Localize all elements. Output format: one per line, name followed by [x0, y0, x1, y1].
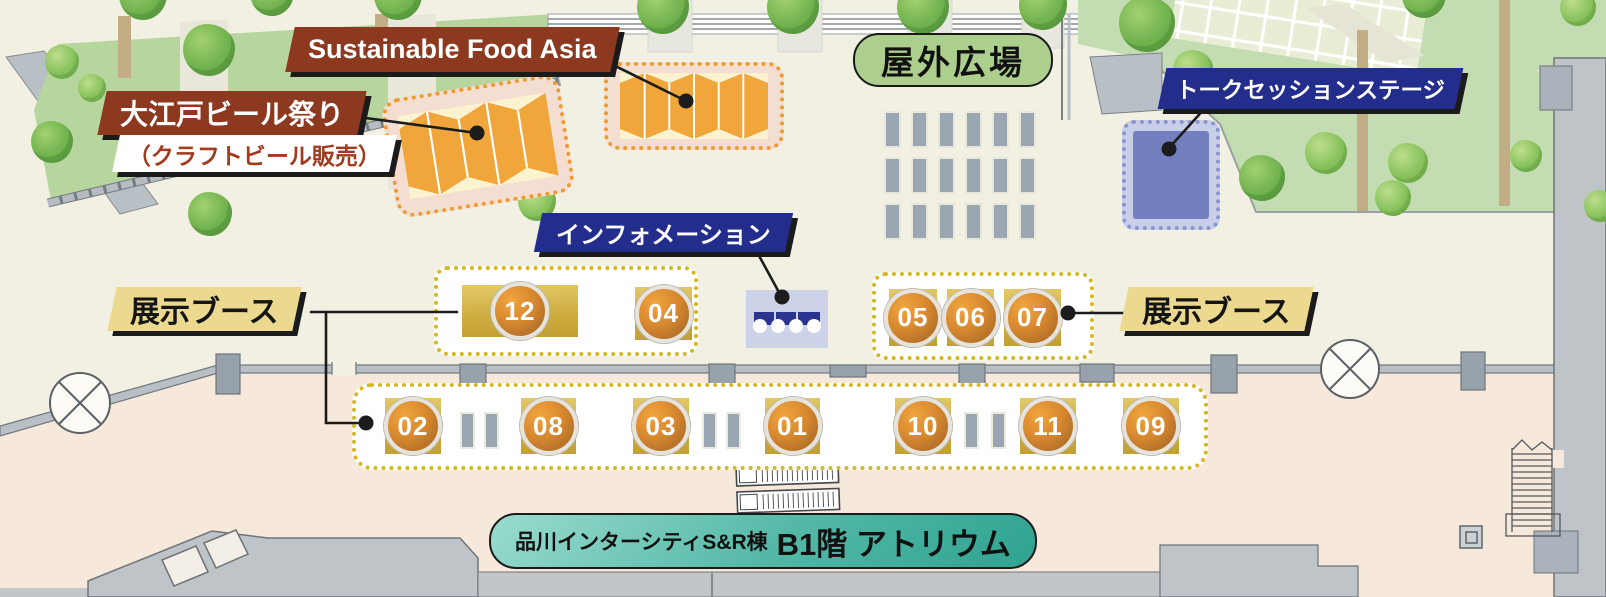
booth-number-badge: 03	[632, 397, 690, 455]
column-symbol-left	[50, 373, 110, 433]
booth-number-badge: 01	[764, 397, 822, 455]
booth-08: 08	[521, 398, 576, 454]
booth-04: 04	[635, 287, 692, 340]
food-asia-tent-zone	[604, 62, 784, 150]
information-desk-icon	[746, 290, 828, 348]
pillar-icon	[993, 414, 1004, 447]
banner-oedo-beer-subtitle: （クラフトビール販売）	[112, 135, 397, 172]
pillar-icon	[704, 414, 715, 447]
booth-box-upper-right: 05 06 07	[872, 272, 1094, 360]
venue-building-name: 品川インターシティS&R棟	[515, 526, 768, 556]
bench-icon	[940, 113, 953, 146]
bench-icon	[940, 159, 953, 192]
banner-label: （クラフトビール販売）	[128, 137, 381, 171]
pillar-icon	[486, 414, 497, 447]
label-exhibition-booth-right: 展示ブース	[1119, 287, 1313, 331]
bench-icon	[886, 159, 899, 192]
booth-06: 06	[947, 289, 994, 346]
booth-number-badge: 02	[384, 397, 442, 455]
floorplan-map: 12 04 05 06 07 02 08 03 01	[0, 0, 1606, 597]
booth-number-badge: 07	[1004, 289, 1062, 347]
banner-label: Sustainable Food Asia	[308, 34, 597, 65]
bench-icon	[994, 113, 1007, 146]
bench-icon	[1021, 159, 1034, 192]
pillar-icon	[462, 414, 473, 447]
label-outdoor-plaza: 屋外広場	[853, 33, 1053, 87]
pillar-icon	[966, 414, 977, 447]
banner-label: インフォメーション	[556, 215, 771, 250]
column-symbol-right	[1321, 340, 1379, 398]
banner-information: インフォメーション	[534, 213, 793, 252]
booth-03: 03	[633, 398, 689, 454]
booth-09: 09	[1123, 398, 1179, 454]
booth-box-upper-left: 12 04	[434, 266, 698, 356]
bench-icon	[1021, 113, 1034, 146]
talk-stage-platform	[1122, 120, 1220, 230]
bench-icon	[1021, 205, 1034, 238]
booth-11: 11	[1020, 398, 1076, 454]
booth-12: 12	[462, 285, 578, 337]
booth-number-badge: 05	[884, 289, 942, 347]
booth-07: 07	[1004, 289, 1061, 346]
booth-number-badge: 09	[1122, 397, 1180, 455]
booth-10: 10	[895, 398, 951, 454]
banner-talk-session-stage: トークセッションステージ	[1158, 68, 1464, 109]
pillar-icon	[728, 414, 739, 447]
bench-icon	[940, 205, 953, 238]
banner-sustainable-food-asia: Sustainable Food Asia	[285, 27, 619, 72]
booth-number-badge: 12	[491, 282, 549, 340]
plaza-bench-grid	[886, 113, 1034, 238]
label-text: 展示ブース	[1142, 287, 1291, 331]
bench-icon	[994, 159, 1007, 192]
booth-number-badge: 11	[1019, 397, 1077, 455]
booth-number-badge: 04	[635, 285, 693, 343]
label-exhibition-booth-left: 展示ブース	[107, 287, 301, 331]
bench-icon	[967, 205, 980, 238]
booth-01: 01	[765, 398, 820, 454]
bench-icon	[913, 113, 926, 146]
label-text: 展示ブース	[130, 287, 279, 331]
booth-number-badge: 10	[894, 397, 952, 455]
venue-floor-name: B1階 アトリウム	[777, 519, 1011, 564]
bench-icon	[913, 159, 926, 192]
bench-icon	[967, 159, 980, 192]
tent-icon	[620, 73, 768, 139]
label-text: 屋外広場	[881, 36, 1025, 84]
booth-05: 05	[889, 289, 937, 346]
top-facade-band	[548, 14, 1102, 34]
stage-icon	[1133, 131, 1209, 219]
banner-label: 大江戸ビール祭り	[120, 93, 344, 133]
tent-icon	[397, 93, 558, 199]
booth-box-bottom: 02 08 03 01 10 11 09	[352, 383, 1208, 470]
banner-oedo-beer-festival: 大江戸ビール祭り	[97, 91, 366, 135]
bench-icon	[913, 205, 926, 238]
bench-icon	[886, 205, 899, 238]
label-venue: 品川インターシティS&R棟 B1階 アトリウム	[489, 513, 1037, 569]
bench-icon	[967, 113, 980, 146]
booth-number-badge: 06	[942, 289, 1000, 347]
booth-number-badge: 08	[520, 397, 578, 455]
bench-icon	[886, 113, 899, 146]
booth-02: 02	[385, 398, 441, 454]
banner-label: トークセッションステージ	[1176, 73, 1445, 105]
bench-icon	[994, 205, 1007, 238]
bottom-wall-band	[478, 572, 1162, 597]
